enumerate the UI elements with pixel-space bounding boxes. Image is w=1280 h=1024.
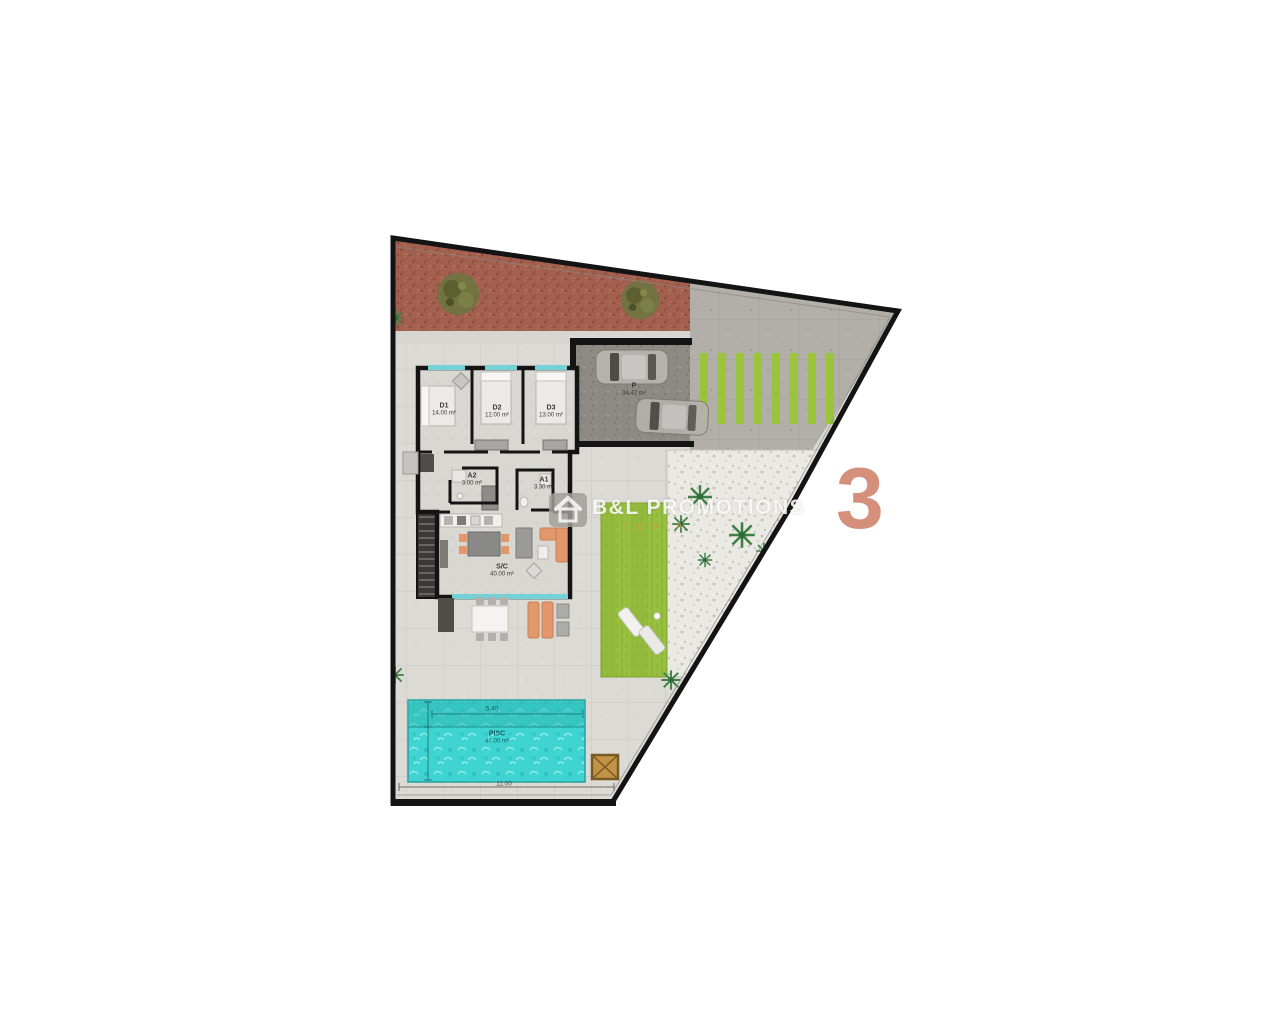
dimension-plot-frontage: 11.00 — [496, 781, 512, 788]
plot-number: 3 — [836, 456, 884, 542]
room-label-parking: P34.42 m² — [622, 383, 646, 398]
watermark-text: B&L PROMOTIONS COSTA — [592, 490, 805, 531]
plot-boundary-bottom — [391, 799, 616, 806]
house-logo-icon — [548, 490, 588, 528]
room-label-bathroom-2: A23.00 m² — [462, 473, 482, 488]
entry-stoop — [403, 452, 418, 474]
dimension-pool-width: 5.40 — [486, 706, 499, 713]
car-icon — [596, 350, 668, 384]
room-label-bedroom-2: D212.00 m² — [485, 405, 509, 420]
watermark: B&L PROMOTIONS COSTA — [548, 490, 805, 531]
room-label-living-kitchen: S/C40.00 m² — [490, 564, 514, 579]
car-icon — [635, 398, 709, 436]
room-label-bedroom-1: D114.00 m² — [432, 403, 456, 418]
watermark-tagline: COSTA — [624, 521, 805, 531]
watermark-brand: B&L PROMOTIONS — [592, 496, 805, 520]
pebble-garden — [667, 450, 822, 677]
side-table — [654, 613, 660, 619]
room-label-pool: PISC47.00 m² — [485, 731, 509, 746]
pergola — [592, 755, 618, 779]
floor-plan-canvas: D114.00 m² D212.00 m² D313.00 m² A23.00 … — [0, 0, 1280, 1024]
tree-icon — [437, 273, 479, 315]
tree-icon — [621, 281, 660, 320]
room-label-bedroom-3: D313.00 m² — [539, 405, 563, 420]
